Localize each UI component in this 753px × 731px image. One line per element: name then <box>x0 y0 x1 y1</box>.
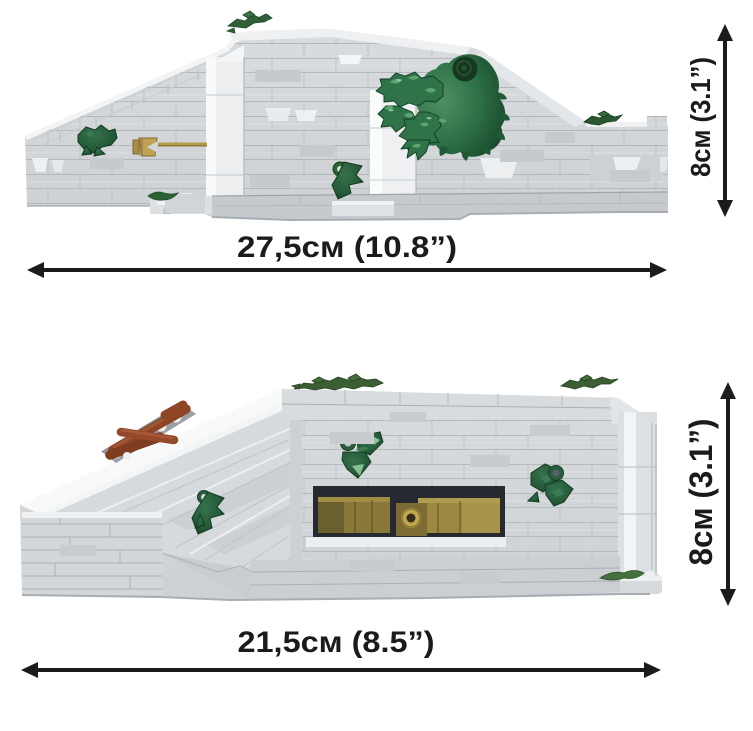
svg-text:8см (3.1”): 8см (3.1”) <box>683 419 719 566</box>
svg-text:27,5см (10.8”): 27,5см (10.8”) <box>237 231 457 264</box>
svg-text:21,5см (8.5”): 21,5см (8.5”) <box>238 626 435 659</box>
svg-text:8см (3.1”): 8см (3.1”) <box>685 57 716 177</box>
